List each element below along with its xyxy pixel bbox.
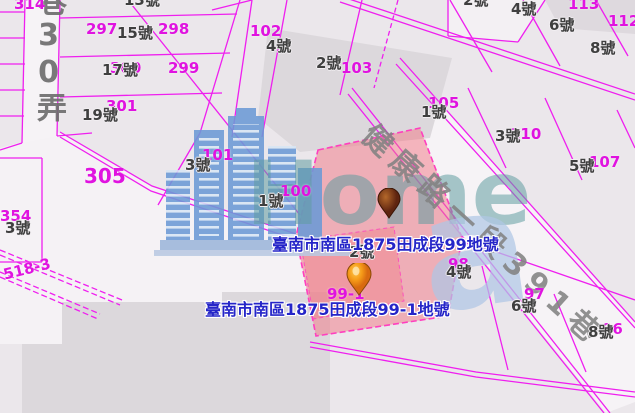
parcel-number-label: 112 xyxy=(608,14,635,29)
parcel-number-label: 103 xyxy=(341,61,372,76)
house-number-label: 17號 xyxy=(102,63,138,78)
house-number-label: 3號 xyxy=(185,158,210,173)
cadastral-map-canvas: Home a 健康路一段391巷 巷30弄 314297298300299301… xyxy=(0,0,635,413)
map-pin-parcel-99-1[interactable] xyxy=(343,263,375,297)
house-number-label: 1號 xyxy=(421,105,446,120)
parcel-number-label: 518-3 xyxy=(2,256,52,282)
parcel-number-label: 297 xyxy=(86,22,117,37)
map-label-layer: 3142972983002993013051021031131121051101… xyxy=(0,0,635,413)
parcel-number-label: 305 xyxy=(84,166,126,186)
house-number-label: 4號 xyxy=(266,39,291,54)
house-number-label: 8號 xyxy=(588,325,613,340)
house-number-label: 1號 xyxy=(258,194,283,209)
house-number-label: 4號 xyxy=(511,2,536,17)
house-number-label: 13號 xyxy=(124,0,160,8)
address-label-parcel-99: 臺南市南區1875田成段99地號 xyxy=(272,231,499,255)
address-label-parcel-99-1: 臺南市南區1875田成段99-1地號 xyxy=(205,296,450,320)
parcel-number-label: 299 xyxy=(168,61,199,76)
house-number-label: 15號 xyxy=(117,26,153,41)
house-number-label: 6號 xyxy=(549,18,574,33)
map-pin-parcel-99[interactable] xyxy=(374,188,404,220)
parcel-number-label: 314 xyxy=(14,0,45,12)
house-number-label: 2號 xyxy=(463,0,488,8)
house-number-label: 6號 xyxy=(511,299,536,314)
house-number-label: 3號 xyxy=(5,221,30,236)
house-number-label: 5號 xyxy=(569,159,594,174)
parcel-number-label: 113 xyxy=(568,0,599,12)
house-number-label: 2號 xyxy=(316,56,341,71)
parcel-number-label: 100 xyxy=(280,184,311,199)
house-number-label: 8號 xyxy=(590,41,615,56)
house-number-label: 4號 xyxy=(446,265,471,280)
house-number-label: 3號 xyxy=(495,129,520,144)
parcel-number-label: 298 xyxy=(158,22,189,37)
house-number-label: 19號 xyxy=(82,108,118,123)
